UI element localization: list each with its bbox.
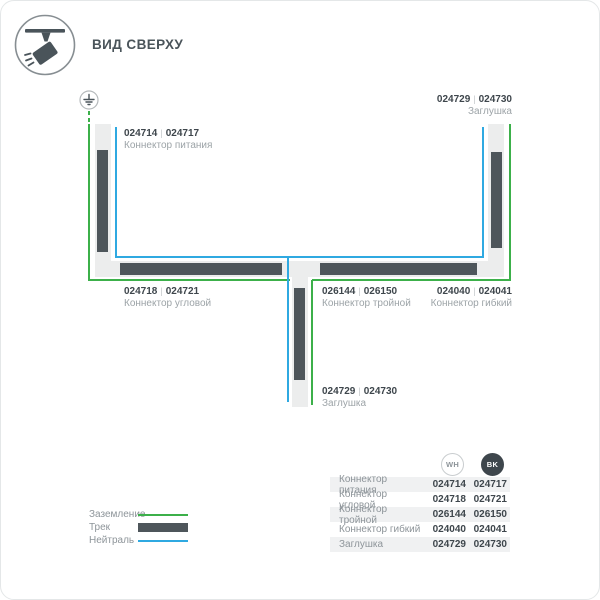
part-label-endcap-top: 024729|024730 Заглушка — [437, 94, 512, 117]
part-label-endcap-bottom: 024729|024730 Заглушка — [322, 386, 397, 409]
page-title: ВИД СВЕРХУ — [92, 37, 183, 52]
white-color-badge: WH — [441, 453, 464, 476]
track-swatch — [138, 523, 188, 532]
part-label-triple-connector: 026144|026150 Коннектор тройной — [322, 286, 411, 309]
track-horizontal-bar-left — [120, 263, 282, 275]
track-middle-bar — [294, 288, 305, 380]
legend: Заземление Трек Нейтраль — [89, 508, 199, 547]
grounding-line-swatch — [138, 514, 188, 516]
track-light-icon — [14, 14, 76, 76]
track-left-bar — [97, 150, 108, 252]
part-label-corner-connector: 024718|024721 Коннектор угловой — [124, 286, 211, 309]
parts-table: WH BK Коннектор питания 024714 024717 Ко… — [330, 451, 510, 552]
part-label-power-connector: 024714|024717 Коннектор питания — [124, 128, 212, 151]
ground-icon — [79, 90, 99, 110]
track-horizontal-bar-right — [320, 263, 477, 275]
track-right-bar — [491, 152, 502, 248]
table-row: Коннектор гибкий 024040 024041 — [330, 522, 510, 537]
legend-track: Трек — [89, 521, 199, 534]
table-row: Коннектор тройной 026144 026150 — [330, 507, 510, 522]
part-label-flexible-connector: 024040|024041 Коннектор гибкий — [431, 286, 512, 309]
black-color-badge: BK — [481, 453, 504, 476]
neutral-line-swatch — [138, 540, 188, 542]
legend-grounding: Заземление — [89, 508, 199, 521]
table-row: Заглушка 024729 024730 — [330, 537, 510, 552]
parts-table-header: WH BK — [330, 451, 510, 477]
legend-neutral: Нейтраль — [89, 534, 199, 547]
